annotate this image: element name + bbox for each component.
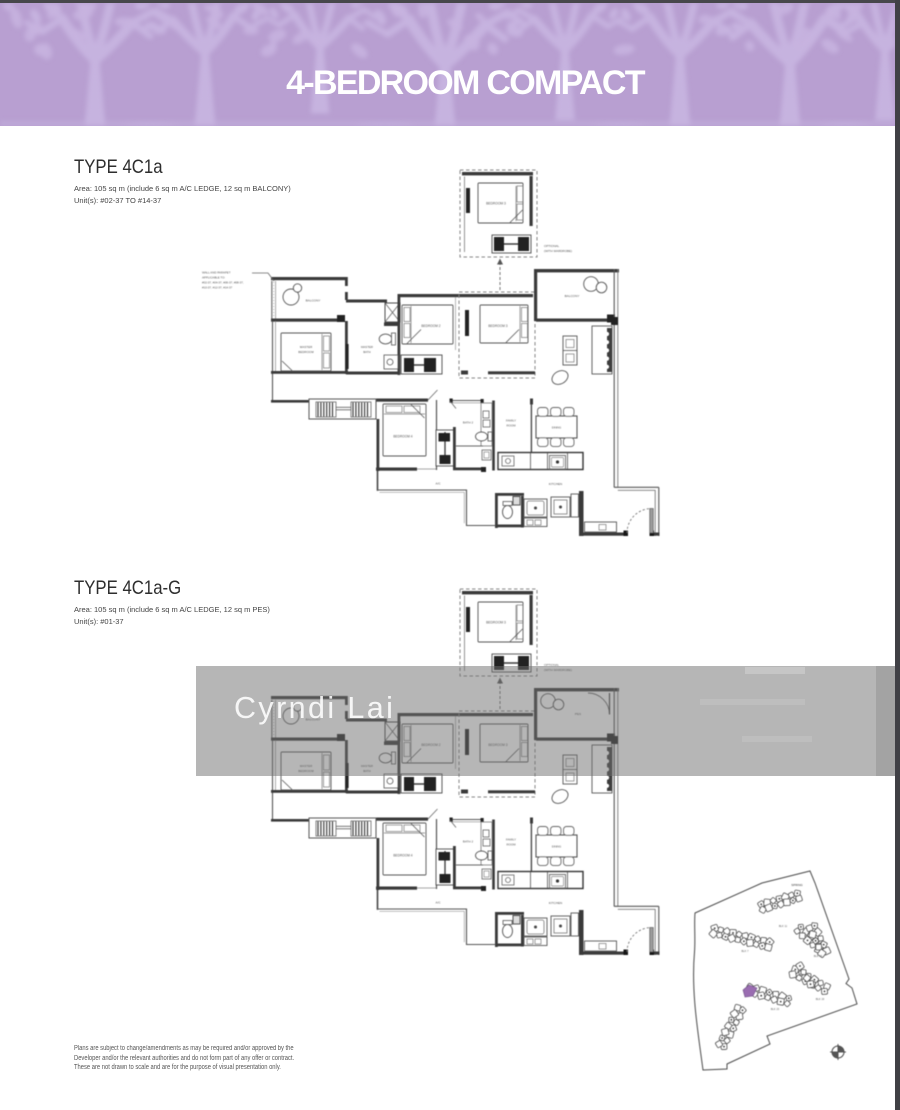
svg-text:BATH: BATH [363, 350, 371, 354]
svg-text:BEDROOM 4: BEDROOM 4 [393, 435, 412, 439]
svg-text:(WITH WARDROBE): (WITH WARDROBE) [544, 249, 572, 253]
svg-text:DINING: DINING [552, 844, 561, 848]
svg-text:FAMILY: FAMILY [506, 838, 516, 842]
svg-text:BLK 23: BLK 23 [771, 1007, 780, 1011]
svg-text:BEDROOM 2: BEDROOM 2 [421, 324, 440, 328]
svg-text:MASTER: MASTER [300, 345, 313, 349]
svg-text:APPLICABLE TO:: APPLICABLE TO: [202, 276, 225, 280]
svg-text:DINING: DINING [552, 425, 561, 429]
svg-text:BALCONY: BALCONY [565, 294, 580, 298]
svg-text:BEDROOM 4: BEDROOM 4 [393, 854, 412, 858]
svg-text:BATH 2: BATH 2 [463, 840, 474, 844]
svg-text:BLK 7: BLK 7 [741, 949, 749, 953]
svg-text:KITCHEN: KITCHEN [549, 482, 563, 486]
svg-text:SPRING: SPRING [791, 883, 803, 887]
svg-text:A/C: A/C [435, 901, 441, 905]
svg-text:BLK 15: BLK 15 [814, 954, 823, 958]
svg-text:BEDROOM 3: BEDROOM 3 [486, 202, 506, 206]
svg-text:BEDROOM 3: BEDROOM 3 [486, 621, 506, 625]
svg-text:#02-37, #04-37, #06-37, #08-37: #02-37, #04-37, #06-37, #08-37, [202, 281, 244, 285]
svg-text:BATH 2: BATH 2 [463, 421, 474, 425]
svg-text:ROOM: ROOM [507, 423, 517, 427]
svg-text:WALL AND PARAPET: WALL AND PARAPET [202, 271, 231, 275]
svg-text:BLK 19: BLK 19 [816, 997, 825, 1001]
svg-text:ROOM: ROOM [507, 842, 517, 846]
svg-text:A/C: A/C [435, 482, 441, 486]
svg-text:OPTIONAL: OPTIONAL [544, 244, 560, 248]
svg-text:FAMILY: FAMILY [506, 419, 516, 423]
svg-text:BALCONY: BALCONY [306, 299, 321, 303]
svg-text:BLK 11: BLK 11 [779, 924, 788, 928]
svg-text:MASTER: MASTER [361, 345, 373, 349]
svg-text:BEDROOM 3: BEDROOM 3 [488, 324, 507, 328]
svg-text:BEDROOM: BEDROOM [298, 350, 314, 354]
svg-text:KITCHEN: KITCHEN [549, 901, 563, 905]
svg-text:#10-37, #12-37, #14-37: #10-37, #12-37, #14-37 [202, 286, 233, 290]
